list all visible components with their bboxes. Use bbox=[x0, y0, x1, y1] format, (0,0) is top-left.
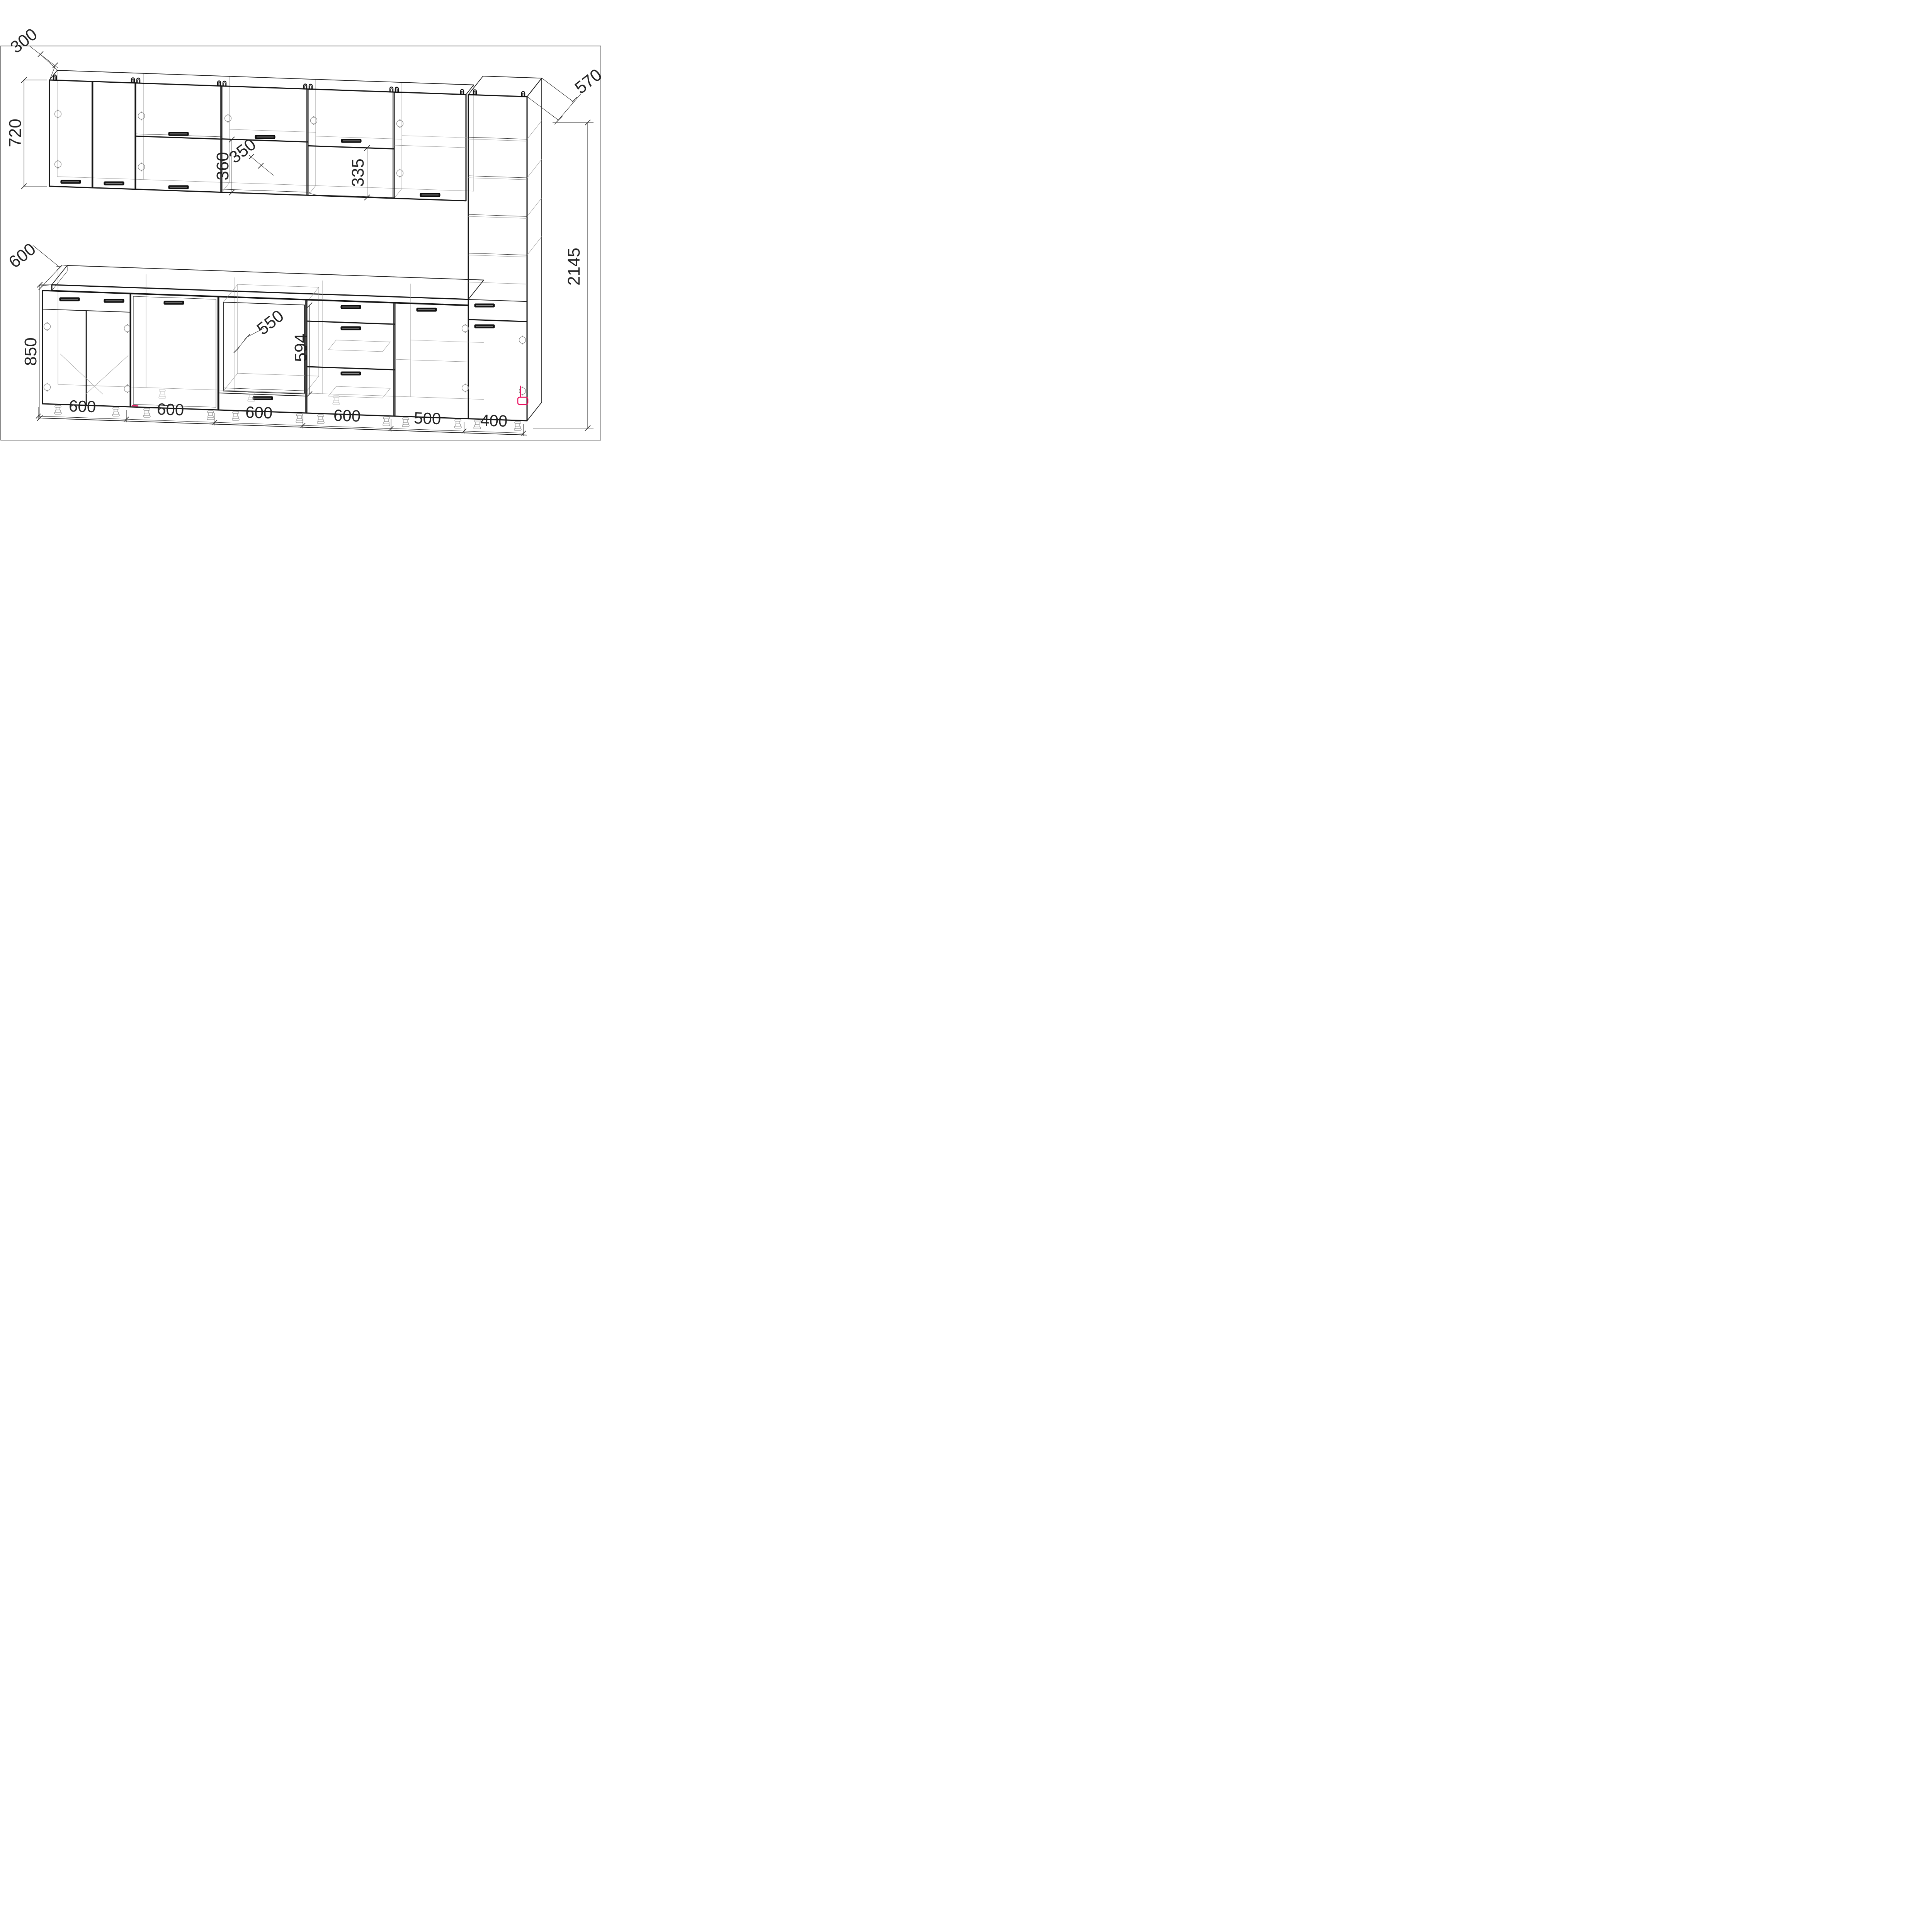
base-cabinet-b1-sink bbox=[43, 291, 131, 407]
dim-wall-height: 720 bbox=[6, 77, 47, 189]
dim-tall-height: 2145 bbox=[533, 120, 594, 431]
accent-mark bbox=[132, 406, 138, 406]
countertop-top-face bbox=[52, 265, 484, 299]
dim-label: 600 bbox=[245, 403, 273, 422]
dim-tall-depth: 570 bbox=[527, 65, 602, 124]
wall-cabinet-w3-niche360 bbox=[222, 86, 316, 196]
dim-label: 500 bbox=[413, 409, 441, 428]
wall-cabinet-row bbox=[49, 70, 474, 201]
base-cabinet-row bbox=[43, 271, 527, 435]
dim-wall-depth: 300 bbox=[7, 25, 58, 80]
dim-label: 2145 bbox=[565, 248, 583, 286]
base-cabinet-b2-dishwasher bbox=[131, 294, 219, 410]
tall-front bbox=[468, 95, 527, 421]
dim-label: 720 bbox=[6, 119, 25, 147]
base-cabinet-b4-drawers bbox=[307, 300, 395, 416]
dim-label: 335 bbox=[349, 158, 367, 187]
drawing-page: 300 720 600 850 bbox=[0, 0, 602, 492]
kitchen-assembly-drawing: 300 720 600 850 bbox=[0, 0, 602, 492]
dim-label: 600 bbox=[68, 397, 96, 416]
dim-label: 400 bbox=[480, 411, 508, 430]
wall-cabinet-w2-flipup bbox=[136, 83, 222, 192]
tall-right-side bbox=[527, 78, 542, 421]
dim-label: 600 bbox=[333, 406, 361, 425]
dim-oven-niche-height: 594 bbox=[291, 303, 312, 397]
dim-label: 550 bbox=[253, 306, 287, 339]
dim-niche-360: 360 bbox=[213, 137, 235, 195]
dim-niche-335: 335 bbox=[349, 145, 370, 200]
dim-label: 600 bbox=[156, 400, 184, 419]
wall-cabinet-w1-two-door bbox=[49, 80, 136, 189]
dim-oven-niche-depth: 550 bbox=[234, 306, 287, 353]
dim-label: 300 bbox=[7, 25, 41, 57]
wall-cabinet-w5-door bbox=[394, 92, 474, 201]
sheet-border bbox=[1, 46, 601, 440]
dim-label: 600 bbox=[5, 240, 39, 272]
dim-label: 594 bbox=[291, 333, 310, 362]
dim-label: 570 bbox=[571, 65, 602, 98]
tall-shelf-column bbox=[468, 76, 542, 421]
dim-base-height: 850 bbox=[21, 282, 55, 421]
dim-bottom-chain: 600 600 600 600 500 400 bbox=[36, 397, 526, 436]
base-cabinet-b5-door bbox=[395, 303, 484, 419]
dim-label: 850 bbox=[21, 337, 40, 366]
accent-bracket bbox=[518, 397, 528, 405]
tall-top-face bbox=[468, 76, 542, 97]
drawer-box-wireframe bbox=[328, 340, 390, 352]
